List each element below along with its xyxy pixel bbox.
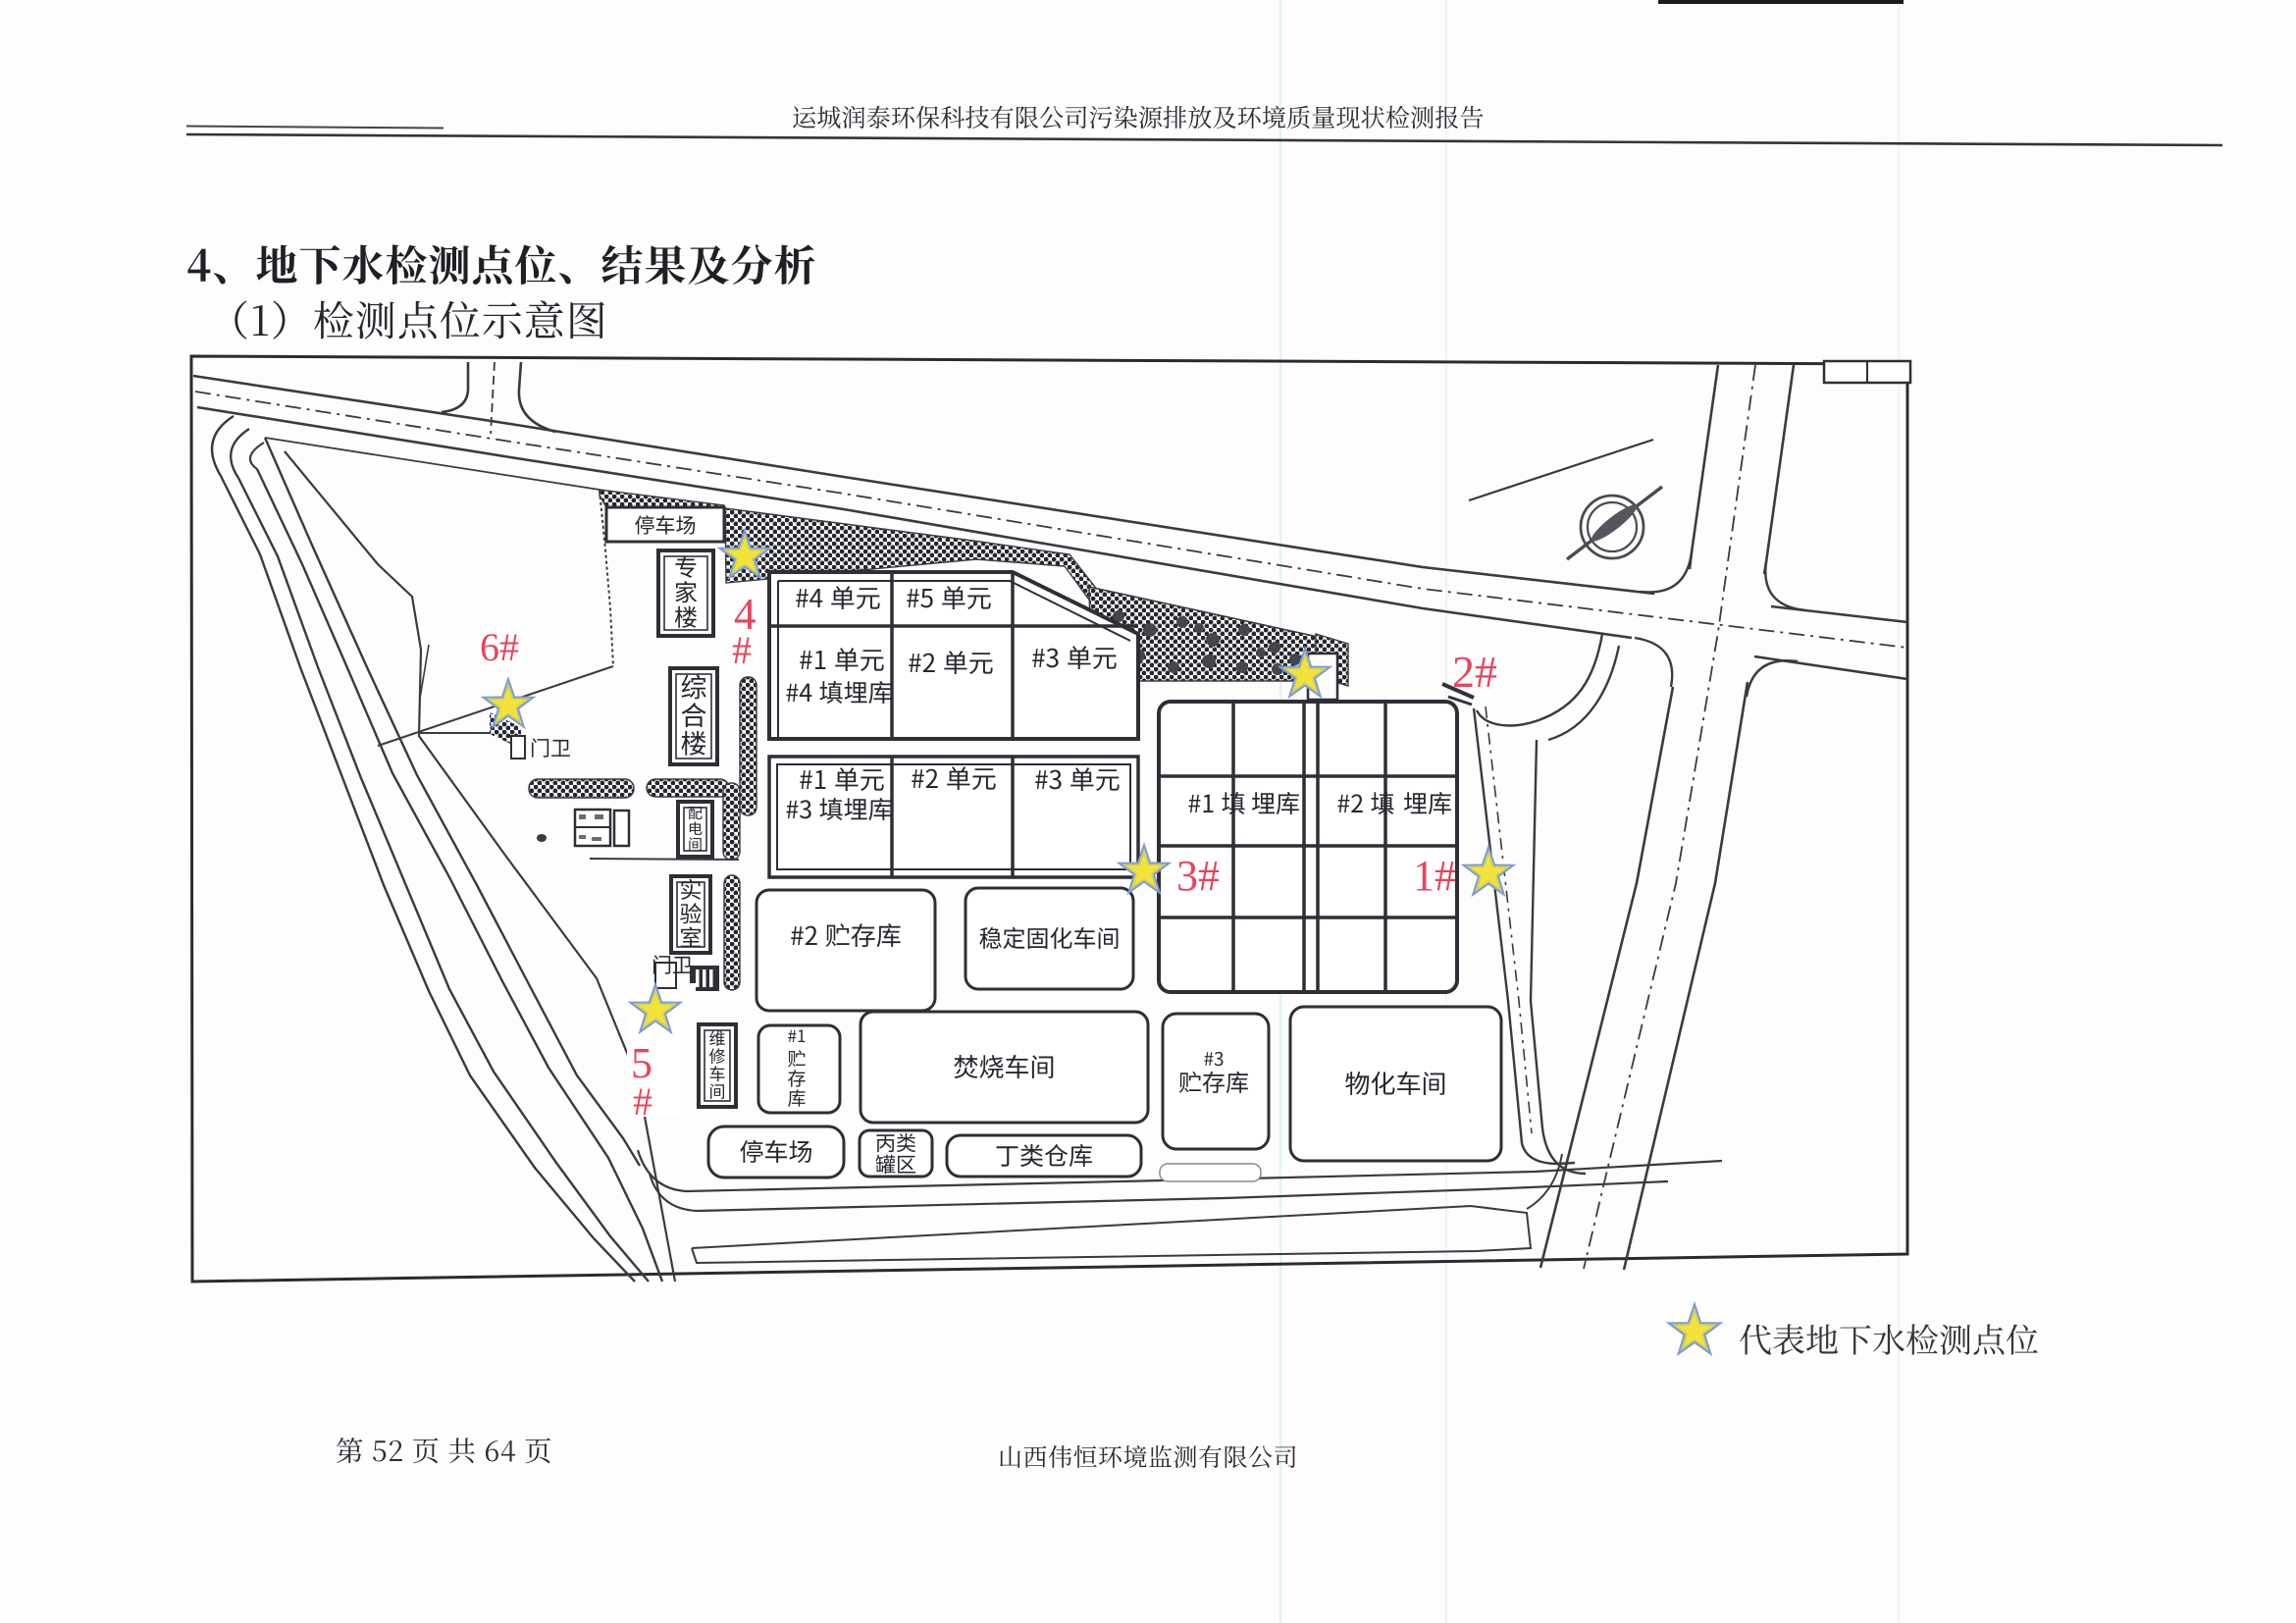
svg-text:3#: 3# [1176, 852, 1220, 900]
svg-text:#: # [633, 1079, 652, 1124]
svg-text:#: # [732, 628, 752, 672]
svg-text:2#: 2# [1452, 647, 1497, 697]
svg-text:1#: 1# [1413, 852, 1456, 900]
svg-text:6#: 6# [480, 625, 519, 669]
